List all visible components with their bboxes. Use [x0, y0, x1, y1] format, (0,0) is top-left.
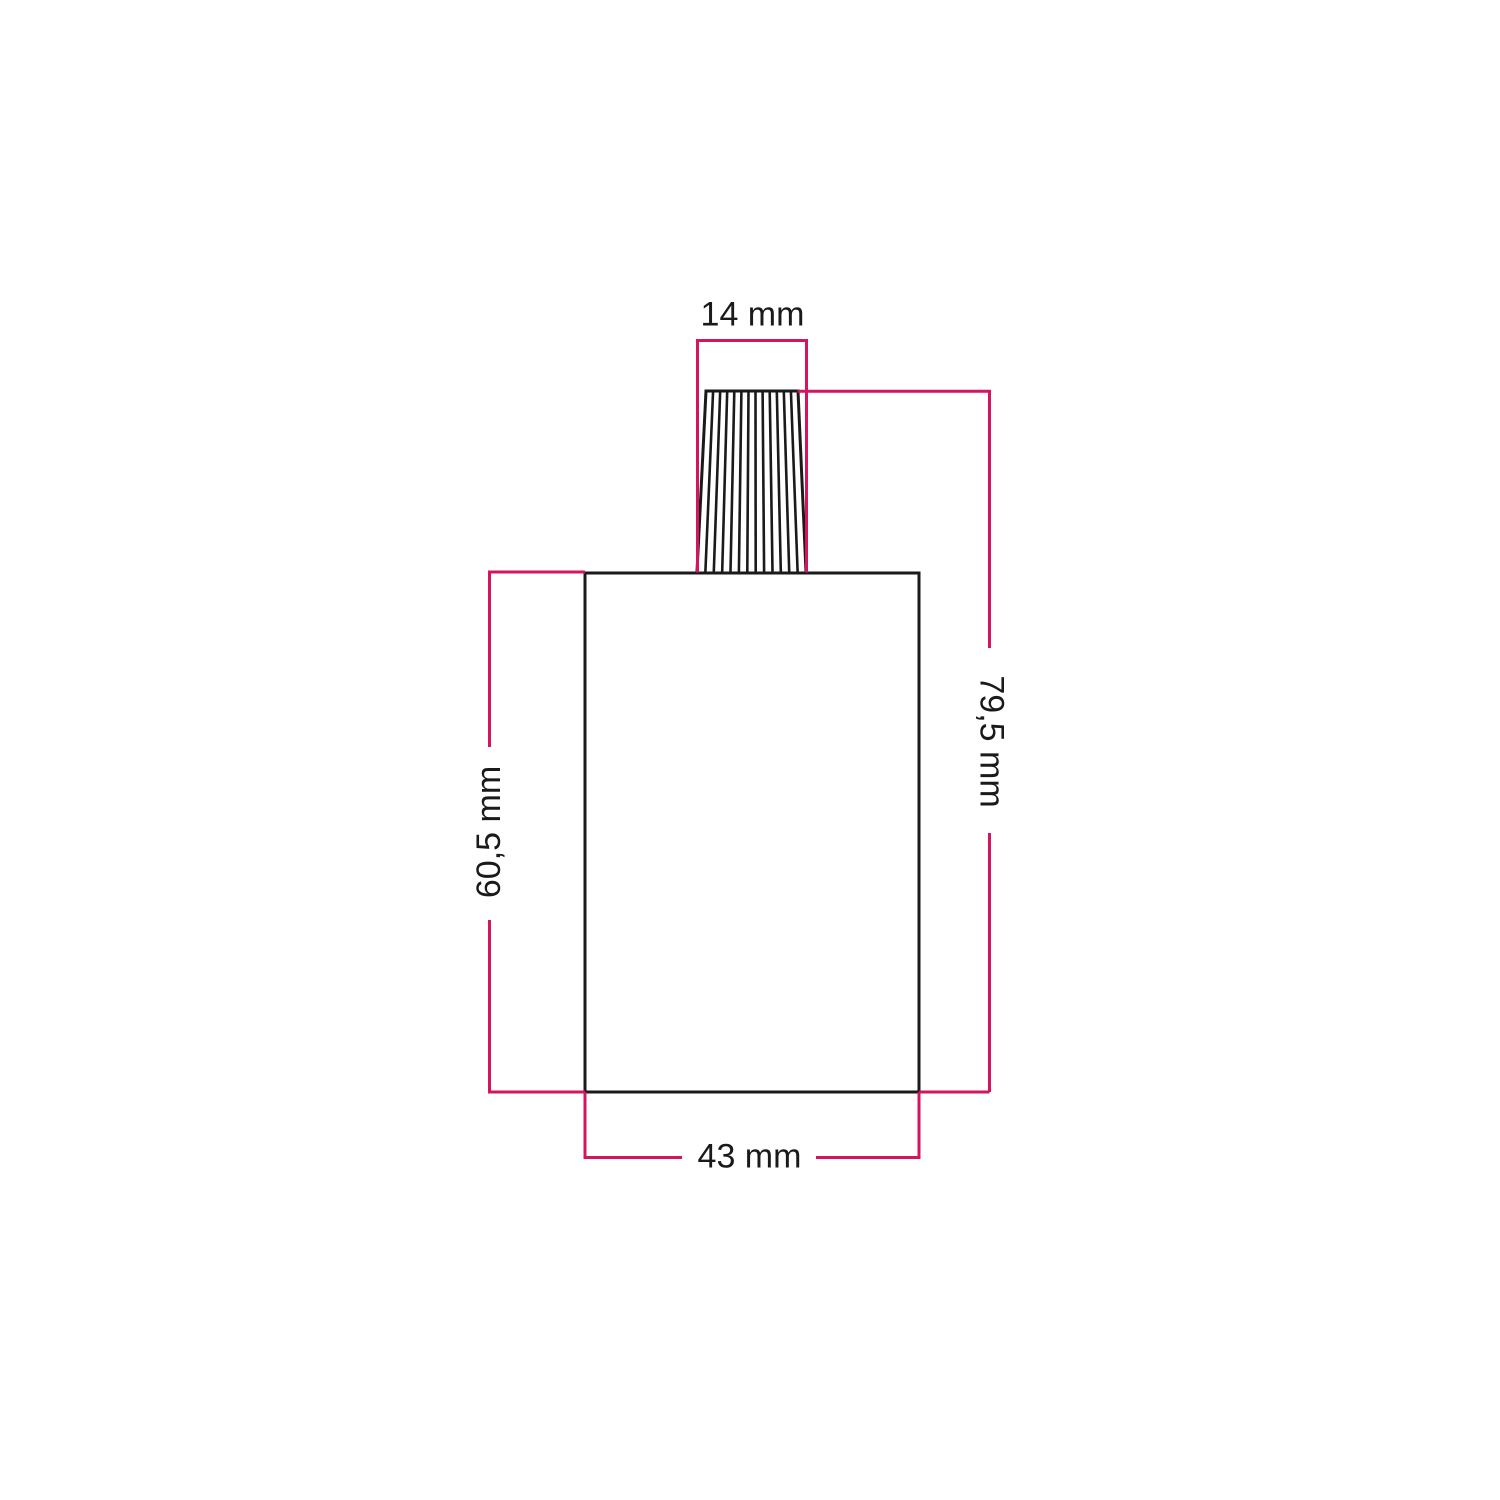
svg-text:79,5 mm: 79,5 mm	[973, 675, 1011, 807]
svg-text:60,5 mm: 60,5 mm	[470, 766, 508, 898]
svg-text:43 mm: 43 mm	[698, 1138, 802, 1176]
svg-text:14 mm: 14 mm	[701, 296, 805, 334]
